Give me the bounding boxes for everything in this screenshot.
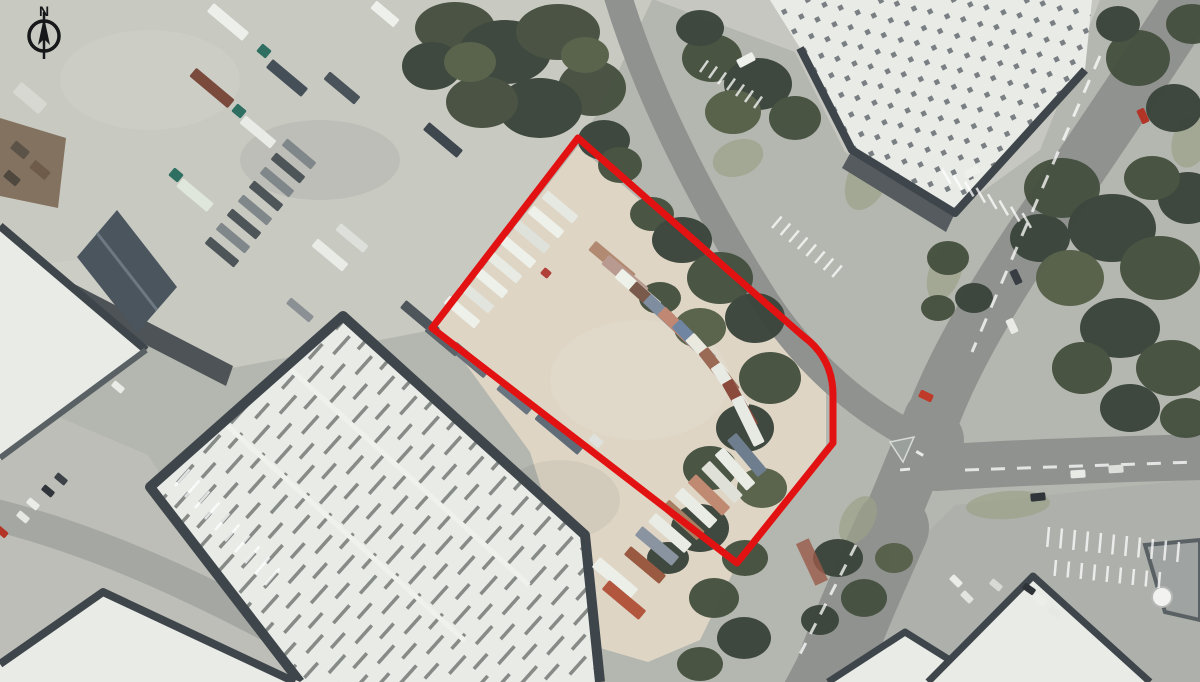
parking-stripe <box>1120 568 1121 584</box>
parking-stripe <box>1138 538 1140 558</box>
car <box>1030 492 1046 502</box>
parking-stripe <box>1146 571 1147 587</box>
parking-stripe <box>1107 566 1108 582</box>
aerial-photo: N <box>0 0 1200 682</box>
parking-stripe <box>1133 569 1134 585</box>
parking-stripe <box>1047 527 1049 547</box>
car <box>1070 469 1086 478</box>
parking-stripe <box>1151 539 1153 559</box>
parking-stripe <box>1060 529 1062 549</box>
storage-tank <box>1152 587 1172 607</box>
parking-stripe <box>1099 533 1101 553</box>
parking-stripe <box>1081 563 1082 579</box>
parking-stripe <box>1086 532 1088 552</box>
parking-stripe <box>1068 562 1069 578</box>
parking-stripe <box>1164 541 1166 561</box>
aerial-site-plan: N <box>0 0 1200 682</box>
parking-stripe <box>1159 572 1160 588</box>
parking-stripe <box>1094 565 1095 581</box>
parking-stripe <box>1177 542 1179 562</box>
parking-stripe <box>1055 560 1056 576</box>
parking-stripe <box>1125 536 1127 556</box>
parking-stripe <box>1073 530 1075 550</box>
parking-stripe <box>1112 535 1114 555</box>
car <box>1108 464 1124 473</box>
north-label: N <box>39 3 49 19</box>
